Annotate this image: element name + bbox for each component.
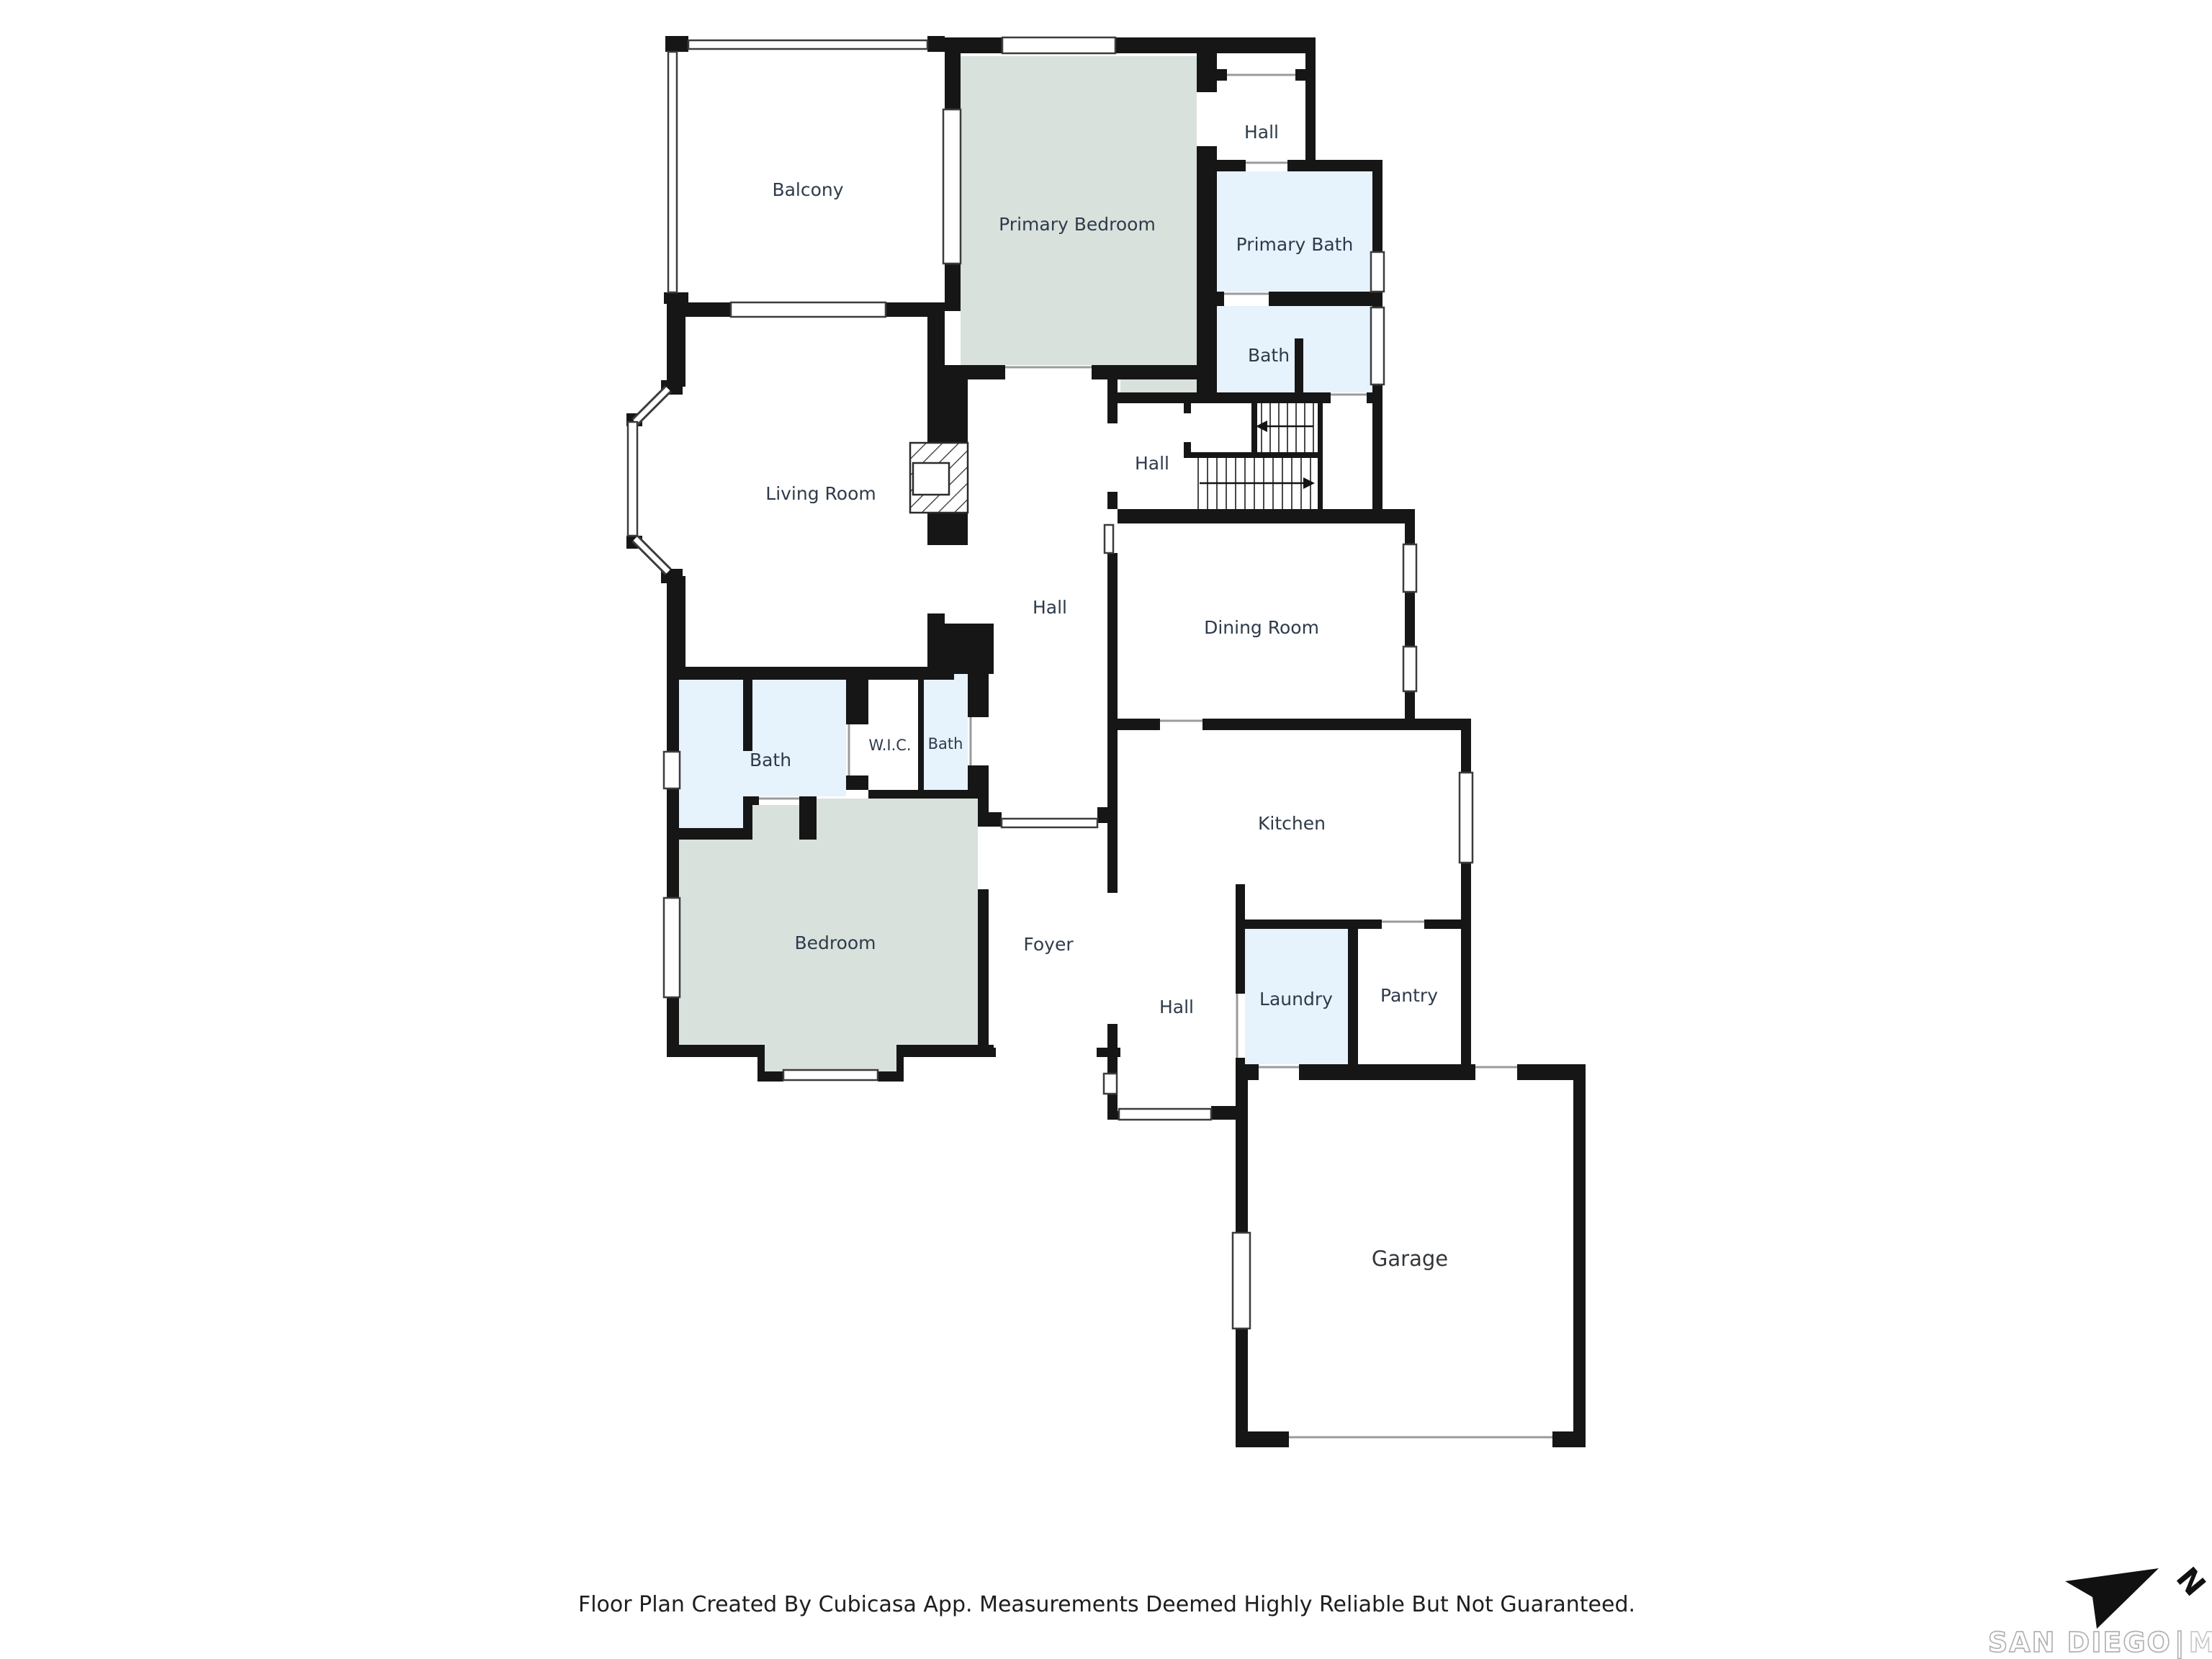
label-kitchen: Kitchen [1258,813,1326,834]
window [783,1070,878,1080]
window [1403,647,1416,691]
window [731,302,886,317]
cased-opening [1002,819,1097,827]
footer-disclaimer: Floor Plan Created By Cubicasa App. Meas… [578,1592,1635,1617]
compass-north-label: N [2170,1560,2212,1602]
brand-logo: SAN DIEGO|MLS [1988,1627,2212,1659]
room-hall-upper [1217,50,1305,160]
label-living-room: Living Room [765,483,876,504]
window [1002,37,1115,53]
window [1119,1109,1211,1120]
label-primary-bath: Primary Bath [1236,234,1354,255]
label-bath-upper: Bath [1248,345,1290,366]
north-compass-icon: N [2065,1560,2212,1629]
label-bath-main: Bath [750,750,791,770]
window [1460,773,1473,863]
stair-down-arrow-icon [1303,477,1315,489]
label-hall-lower: Hall [1159,997,1194,1017]
cased-opening [1105,525,1113,553]
label-wic: W.I.C. [868,737,911,754]
window [943,109,961,264]
label-pantry: Pantry [1380,985,1438,1006]
label-dining-room: Dining Room [1204,617,1319,638]
window [664,898,680,997]
label-hall-stairs: Hall [1135,453,1169,474]
room-balcony [677,50,945,302]
room-fills [677,50,1573,1431]
label-foyer: Foyer [1023,934,1074,955]
label-bath-small: Bath [928,735,963,752]
floor-plan-canvas: Balcony Primary Bedroom Hall Primary Bat… [0,0,2212,1659]
window [1403,544,1416,592]
window [1371,252,1384,292]
room-bath-small [923,674,968,790]
room-primary-bath [1217,171,1372,292]
label-laundry: Laundry [1259,989,1333,1010]
room-wic [868,674,918,790]
window [664,752,680,788]
window [1104,1074,1117,1094]
window [1371,307,1384,385]
label-hall-upper: Hall [1244,122,1279,143]
label-garage: Garage [1372,1246,1448,1271]
window [1233,1233,1250,1328]
label-bedroom: Bedroom [794,932,876,953]
balcony-railing [668,52,677,292]
label-hall-center: Hall [1033,597,1067,618]
label-primary-bedroom: Primary Bedroom [999,214,1156,235]
balcony-railing [688,40,927,49]
fireplace-icon [910,443,968,513]
label-balcony: Balcony [772,179,843,200]
